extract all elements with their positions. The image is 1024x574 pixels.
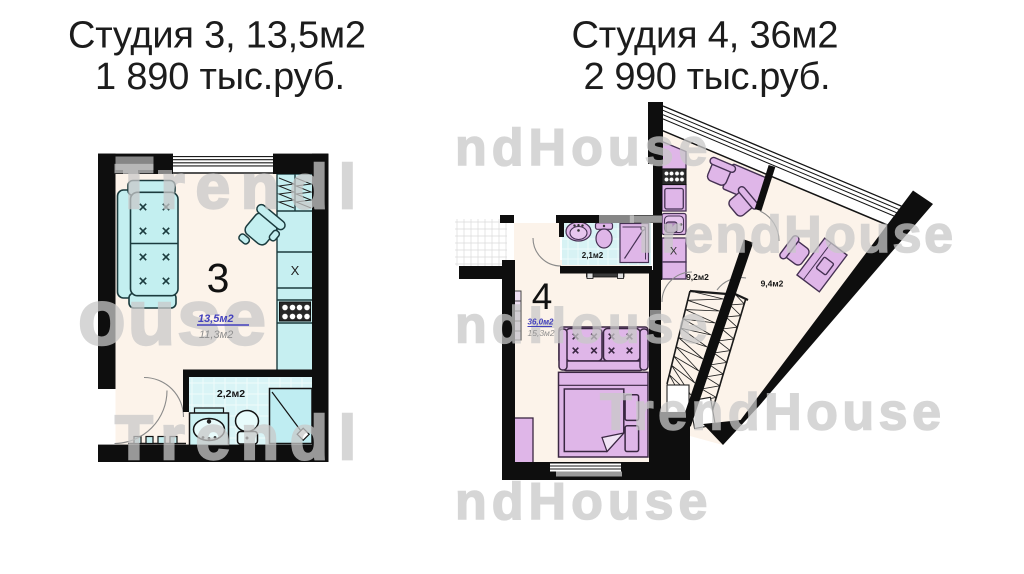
svg-text:X: X xyxy=(291,263,300,278)
svg-text:2 990 тыс.руб.: 2 990 тыс.руб. xyxy=(584,56,831,98)
svg-text:2,2м2: 2,2м2 xyxy=(217,388,245,400)
svg-text:15,3м2: 15,3м2 xyxy=(528,328,555,338)
svg-text:ouse: ouse xyxy=(78,273,268,361)
svg-text:TrendHouse: TrendHouse xyxy=(600,384,946,442)
svg-text:13,5м2: 13,5м2 xyxy=(198,313,234,325)
svg-text:3: 3 xyxy=(207,255,230,301)
svg-text:ndHouse: ndHouse xyxy=(455,119,712,177)
svg-text:Trendl: Trendl xyxy=(115,404,367,473)
svg-text:1 890 тыс.руб.: 1 890 тыс.руб. xyxy=(95,56,345,98)
svg-text:ndHouse: ndHouse xyxy=(455,297,712,355)
svg-text:TrendHouse: TrendHouse xyxy=(630,206,956,264)
svg-text:4: 4 xyxy=(532,276,553,317)
svg-text:ndHouse: ndHouse xyxy=(455,473,712,531)
svg-text:36,0м2: 36,0м2 xyxy=(528,318,554,327)
svg-text:X: X xyxy=(670,246,678,258)
svg-text:Студия 3, 13,5м2: Студия 3, 13,5м2 xyxy=(68,15,366,57)
svg-text:11,3м2: 11,3м2 xyxy=(199,329,233,341)
svg-text:9,2м2: 9,2м2 xyxy=(686,272,709,282)
svg-text:9,4м2: 9,4м2 xyxy=(761,279,784,289)
svg-text:Студия 4, 36м2: Студия 4, 36м2 xyxy=(572,15,839,57)
svg-text:Trendl: Trendl xyxy=(115,153,367,222)
svg-text:2,1м2: 2,1м2 xyxy=(582,251,604,260)
